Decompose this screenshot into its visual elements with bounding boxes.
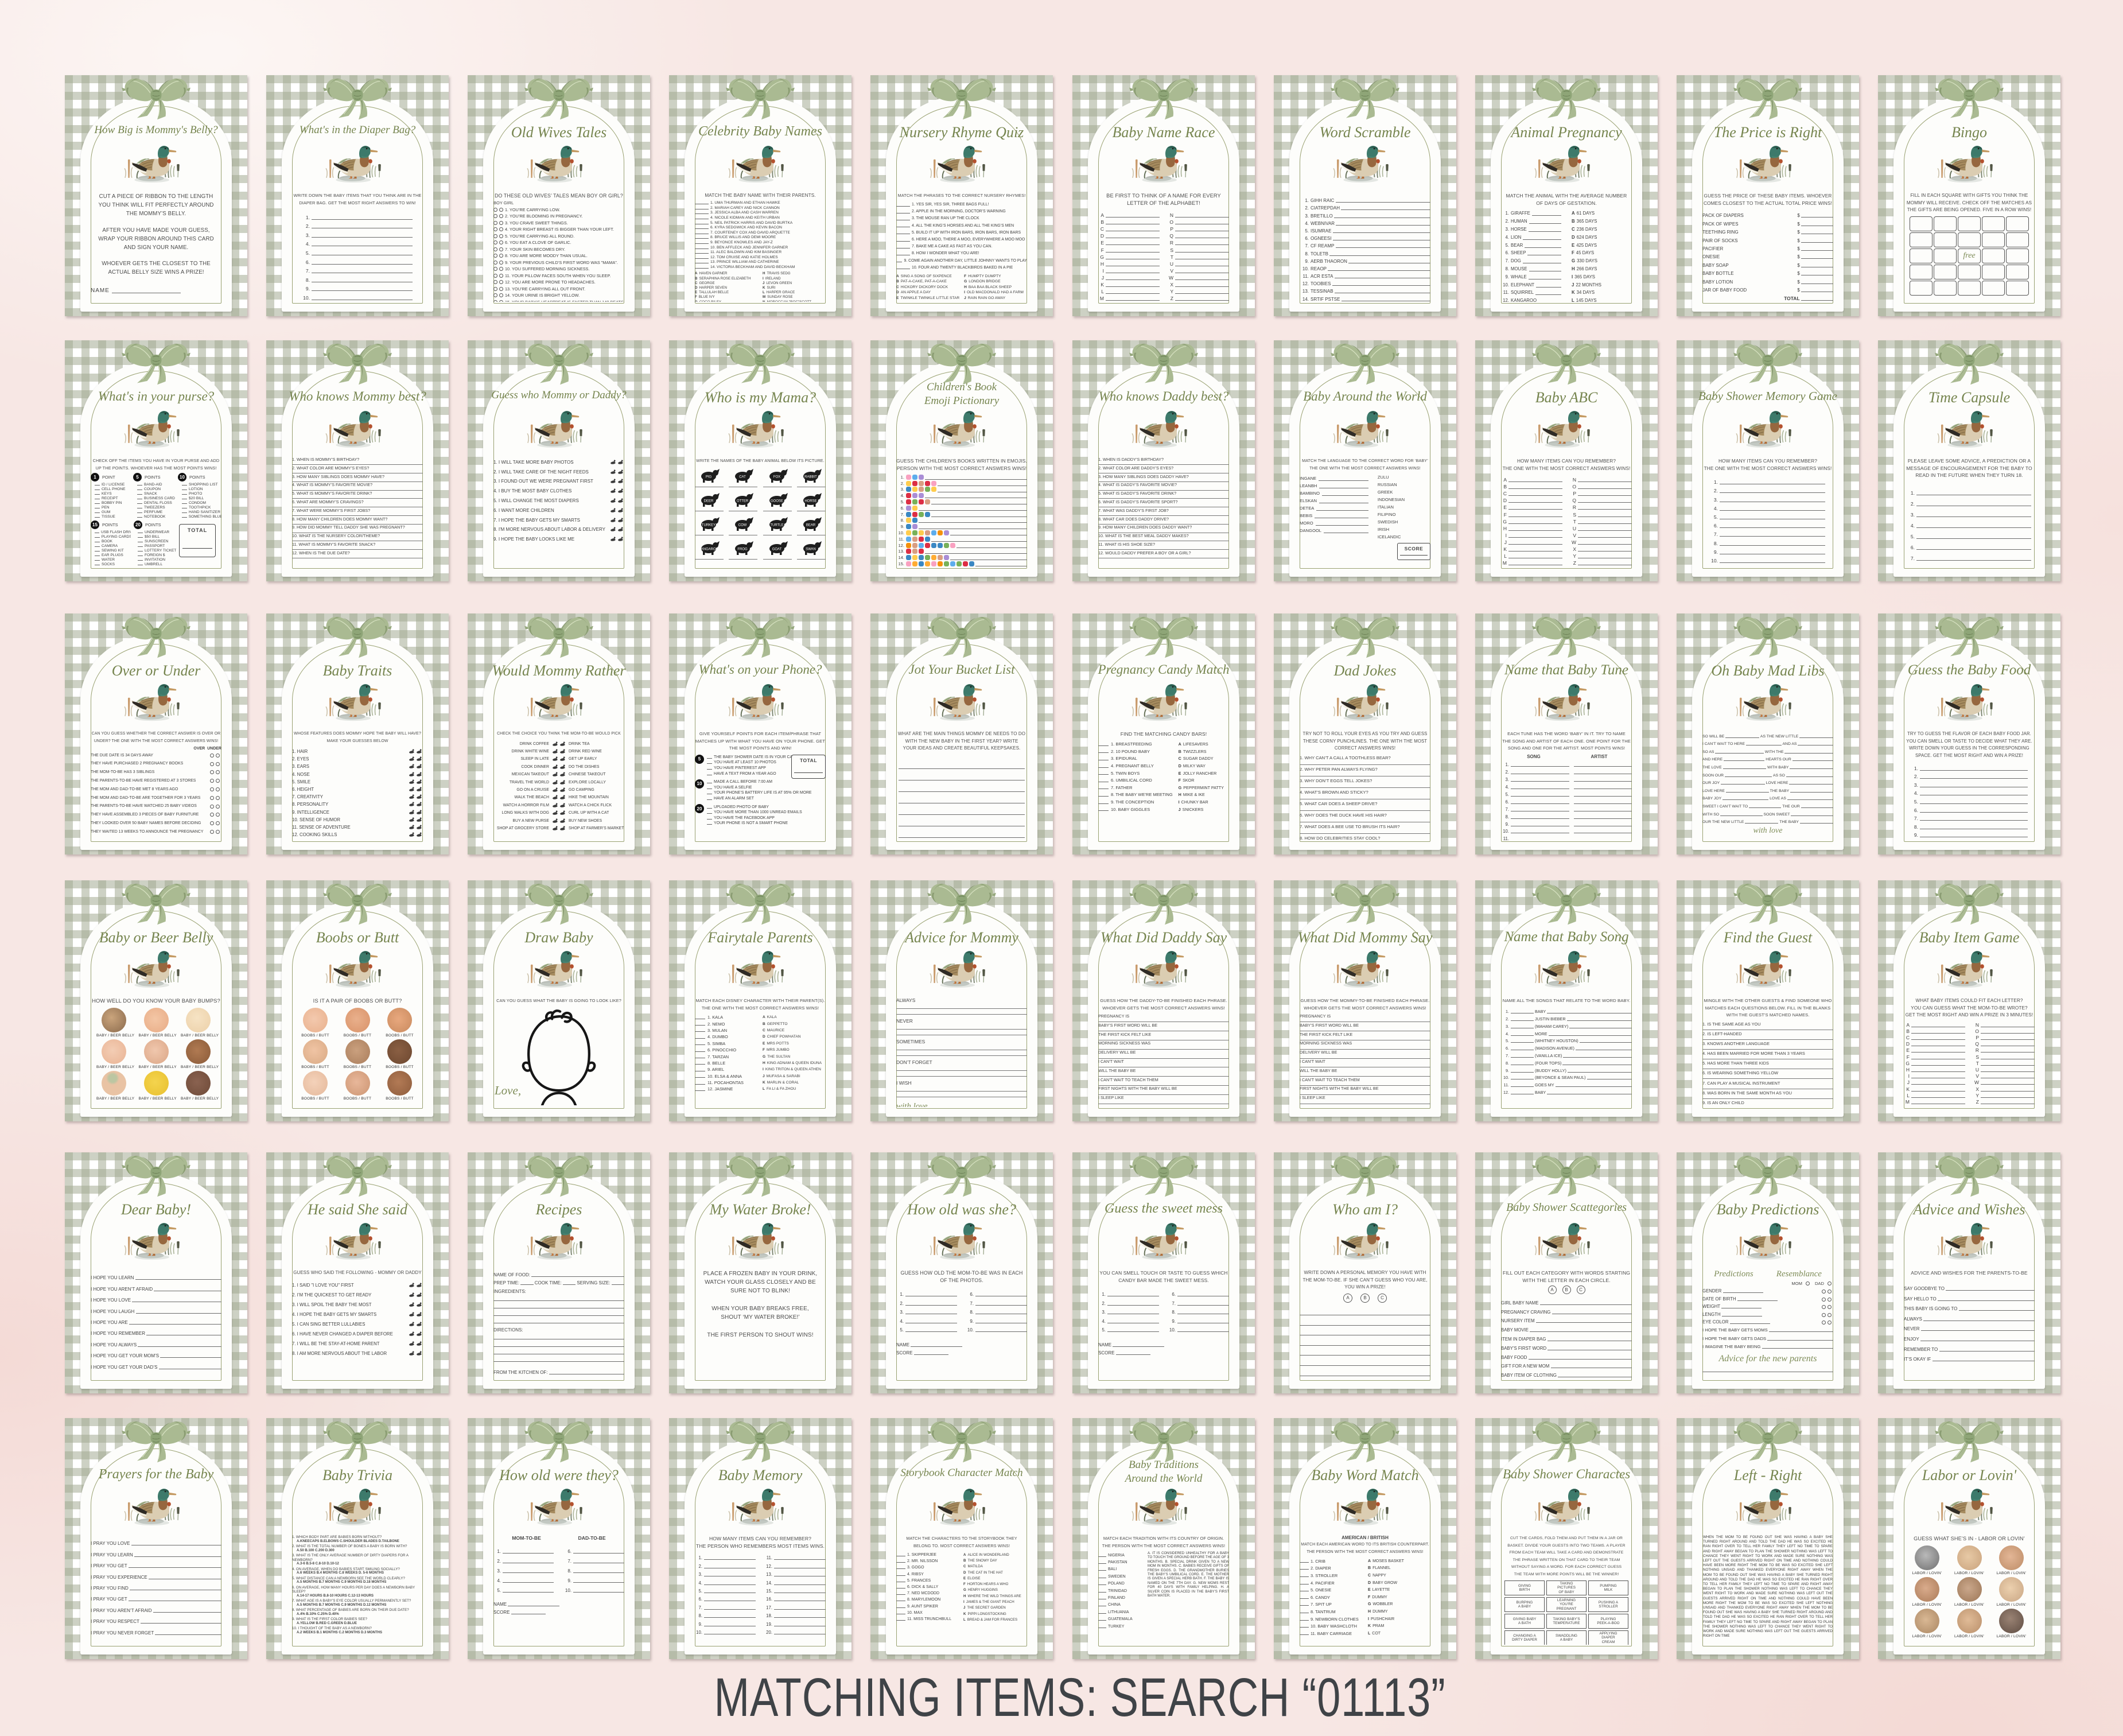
svg-text:PIG: PIG	[706, 475, 712, 479]
svg-text:TURKEY: TURKEY	[702, 523, 716, 527]
svg-text:SWAN: SWAN	[806, 547, 816, 551]
svg-text:DEER: DEER	[704, 499, 714, 503]
svg-text:GOAT: GOAT	[772, 547, 781, 551]
svg-text:GOOSE: GOOSE	[771, 499, 783, 503]
svg-text:TURTLE: TURTLE	[770, 523, 783, 527]
svg-text:BEAR: BEAR	[806, 523, 816, 527]
svg-text:FOX: FOX	[773, 475, 780, 479]
svg-text:FROG: FROG	[738, 547, 748, 551]
svg-text:HORSE: HORSE	[804, 499, 816, 503]
svg-text:COW: COW	[738, 523, 747, 527]
svg-text:KANGAROO: KANGAROO	[699, 547, 719, 551]
svg-text:OTTER: OTTER	[737, 499, 749, 503]
svg-text:CAT: CAT	[740, 475, 746, 479]
svg-text:RABBIT: RABBIT	[804, 475, 817, 479]
